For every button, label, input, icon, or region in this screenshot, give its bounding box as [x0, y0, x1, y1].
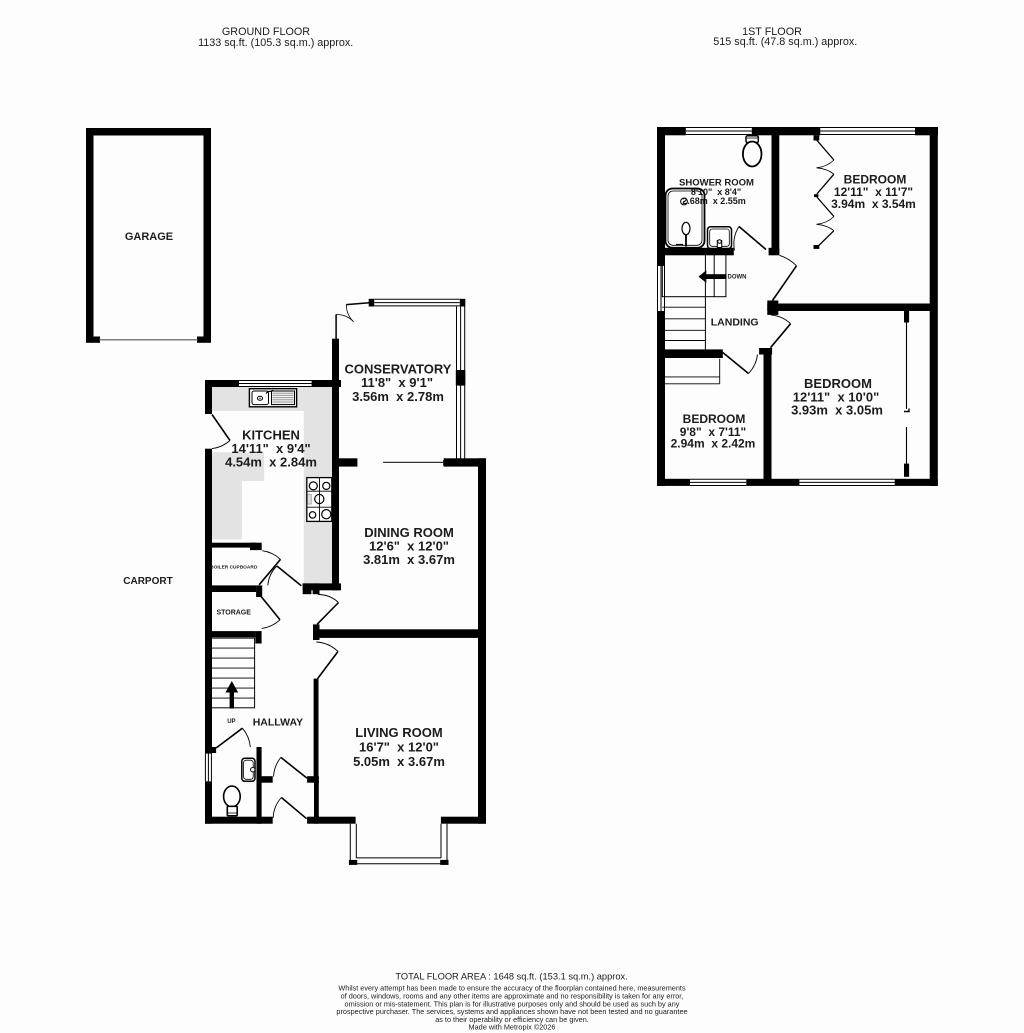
svg-text:LANDING: LANDING	[711, 316, 759, 328]
svg-text:LIVING ROOM: LIVING ROOM	[355, 725, 442, 740]
svg-text:UP: UP	[227, 719, 235, 725]
svg-text:2.68m x 2.55m: 2.68m x 2.55m	[682, 196, 746, 206]
svg-text:3.93m x 3.05m: 3.93m x 3.05m	[791, 403, 883, 418]
svg-text:4.54m x 2.84m: 4.54m x 2.84m	[225, 455, 317, 470]
svg-text:3.94m x 3.54m: 3.94m x 3.54m	[831, 197, 916, 211]
svg-text:5.05m x 3.67m: 5.05m x 3.67m	[353, 754, 445, 769]
svg-text:BOILER CUPBOARD: BOILER CUPBOARD	[210, 564, 258, 570]
svg-text:3.81m x 3.67m: 3.81m x 3.67m	[363, 552, 455, 567]
svg-text:1133 sq.ft. (105.3 sq.m.) appr: 1133 sq.ft. (105.3 sq.m.) approx.	[198, 37, 353, 49]
svg-text:TOTAL FLOOR AREA : 1648 sq.ft.: TOTAL FLOOR AREA : 1648 sq.ft. (153.1 sq…	[395, 971, 627, 981]
svg-text:515 sq.ft. (47.8 sq.m.) approx: 515 sq.ft. (47.8 sq.m.) approx.	[713, 36, 857, 48]
svg-text:3.56m x 2.78m: 3.56m x 2.78m	[352, 389, 444, 404]
svg-text:Made with Metropix ©2026: Made with Metropix ©2026	[469, 1023, 556, 1032]
svg-text:11'8" x 9'1": 11'8" x 9'1"	[361, 375, 433, 390]
svg-text:STORAGE: STORAGE	[216, 609, 251, 616]
svg-text:DOWN: DOWN	[728, 275, 747, 281]
svg-text:HALLWAY: HALLWAY	[253, 717, 303, 729]
svg-text:GROUND FLOOR: GROUND FLOOR	[222, 26, 310, 38]
svg-text:GARAGE: GARAGE	[125, 231, 173, 243]
svg-text:CARPORT: CARPORT	[123, 576, 172, 587]
svg-text:16'7" x 12'0": 16'7" x 12'0"	[359, 740, 439, 755]
svg-text:BEDROOM: BEDROOM	[683, 412, 746, 426]
svg-text:2.94m x 2.42m: 2.94m x 2.42m	[671, 437, 756, 451]
